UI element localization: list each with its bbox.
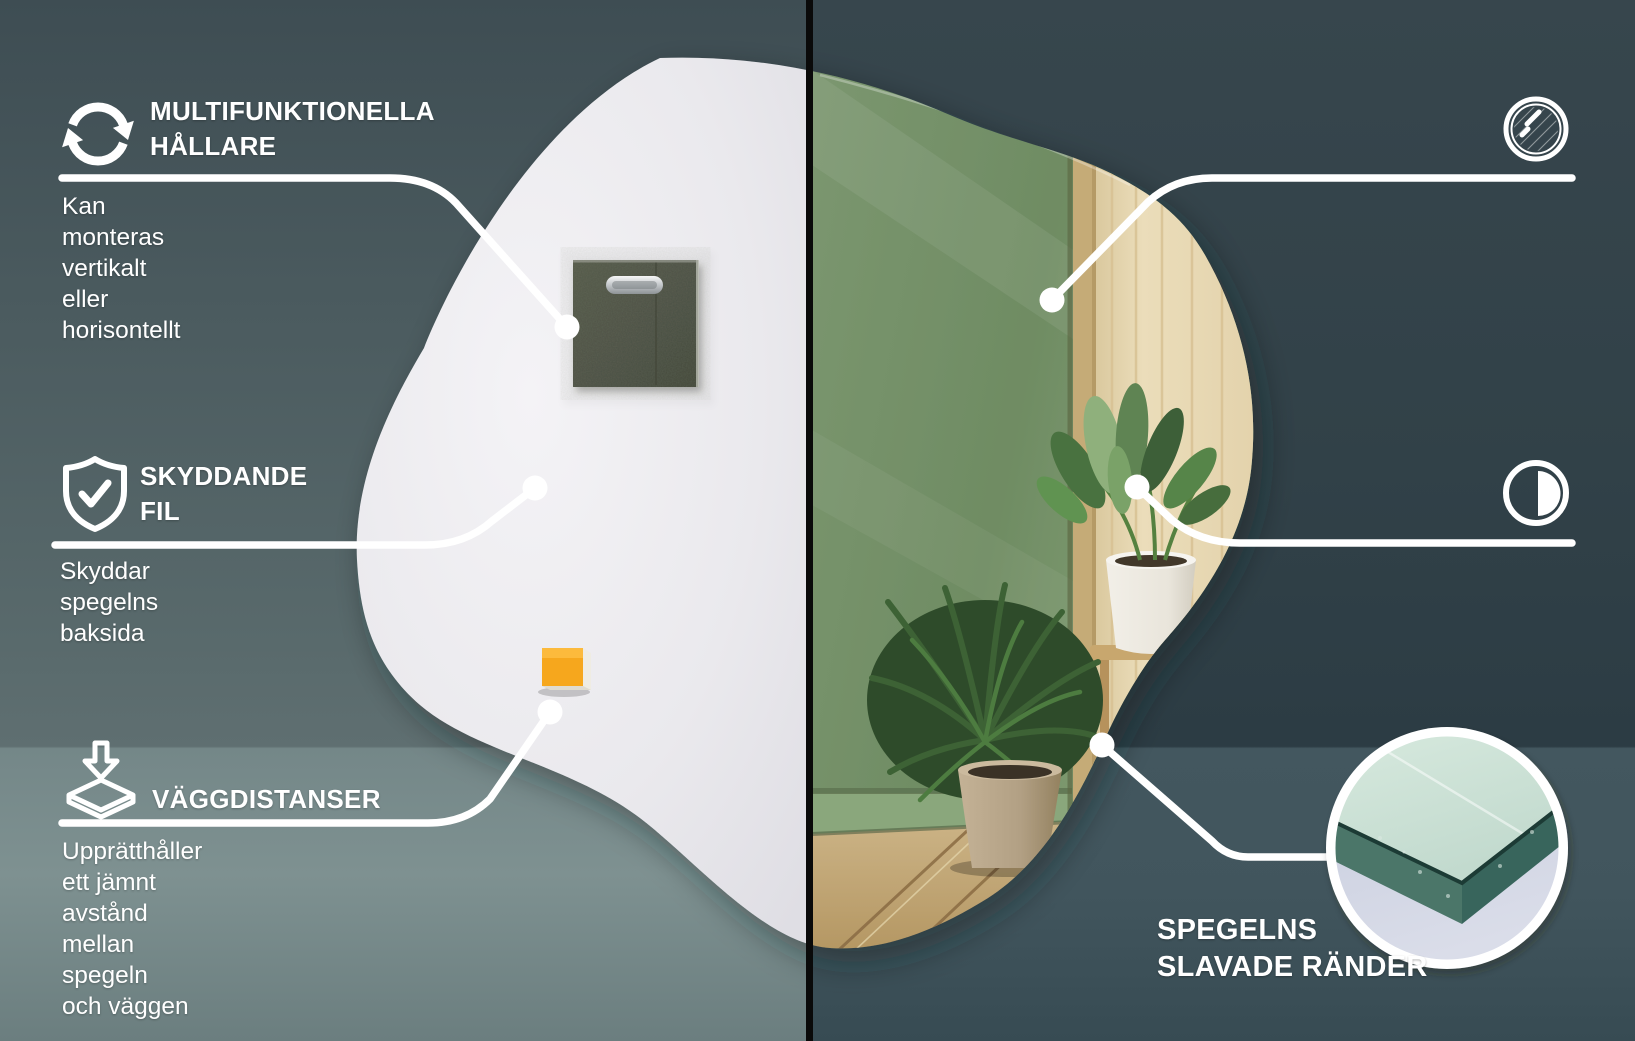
mirror-blob [300,30,1262,990]
feature-description: Skyddar spegelns baksida [60,556,158,649]
feature-title: SKYDDANDE FIL [140,459,307,529]
mirror-back-panel [300,30,812,990]
orange-spacer-pad [538,648,591,697]
feature-description: Kan monteras vertikalt eller horisontell… [62,191,180,346]
feature-ground-edges-label: SPEGELNS SLAVADE RÄNDER [1157,912,1428,986]
felt-hanger-plate [573,260,699,387]
metal-hanger-bracket [606,276,663,294]
shield-check-icon [62,455,128,533]
callout-dot-design [1125,475,1150,500]
callout-dot-edges [1090,733,1115,758]
spacer-stack-icon [64,740,138,820]
feature-title: MULTIFUNKTIONELLA HÅLLARE [150,94,435,164]
callout-dot-film [523,476,548,501]
reflection-white-pot [1106,551,1196,654]
half-circle-icon [1502,459,1570,527]
rotate-arrows-icon [56,92,140,176]
mirror-product-infographic: MULTIFUNKTIONELLA HÅLLARE Kan monteras v… [0,0,1635,1041]
callout-dot-glass [1040,288,1065,313]
feature-description: Upprätthåller ett jämnt avstånd mellan s… [62,836,202,1022]
callout-line-edges [1102,745,1340,857]
mirror-circle-icon [1502,95,1570,163]
callout-dot-spacers [538,700,563,725]
callout-dot-hangers [555,315,580,340]
divider-bar [806,0,813,1041]
feature-title: VÄGGDISTANSER [152,782,381,817]
